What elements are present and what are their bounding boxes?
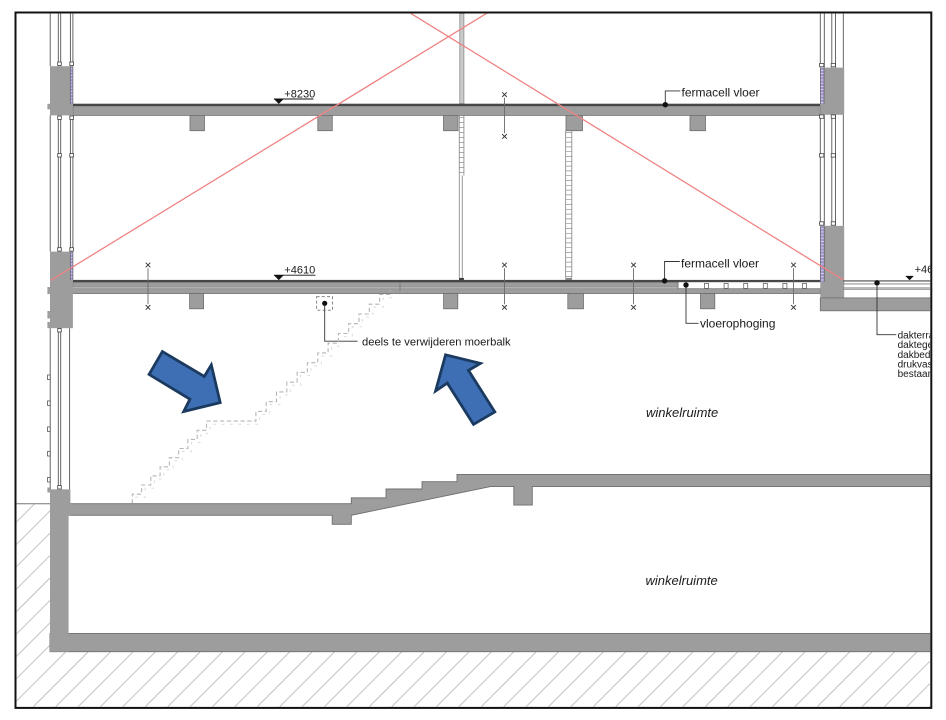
svg-text:+4610: +4610 <box>284 265 315 277</box>
svg-text:fermacell vloer: fermacell vloer <box>681 256 759 270</box>
svg-text:fermacell vloer: fermacell vloer <box>682 86 760 100</box>
svg-text:winkelruimte: winkelruimte <box>646 405 718 420</box>
svg-text:+8230: +8230 <box>284 89 315 101</box>
svg-text:winkelruimte: winkelruimte <box>646 573 718 588</box>
svg-text:vloerophoging: vloerophoging <box>700 317 775 331</box>
svg-text:deels te verwijderen moerbalk: deels te verwijderen moerbalk <box>362 336 511 348</box>
